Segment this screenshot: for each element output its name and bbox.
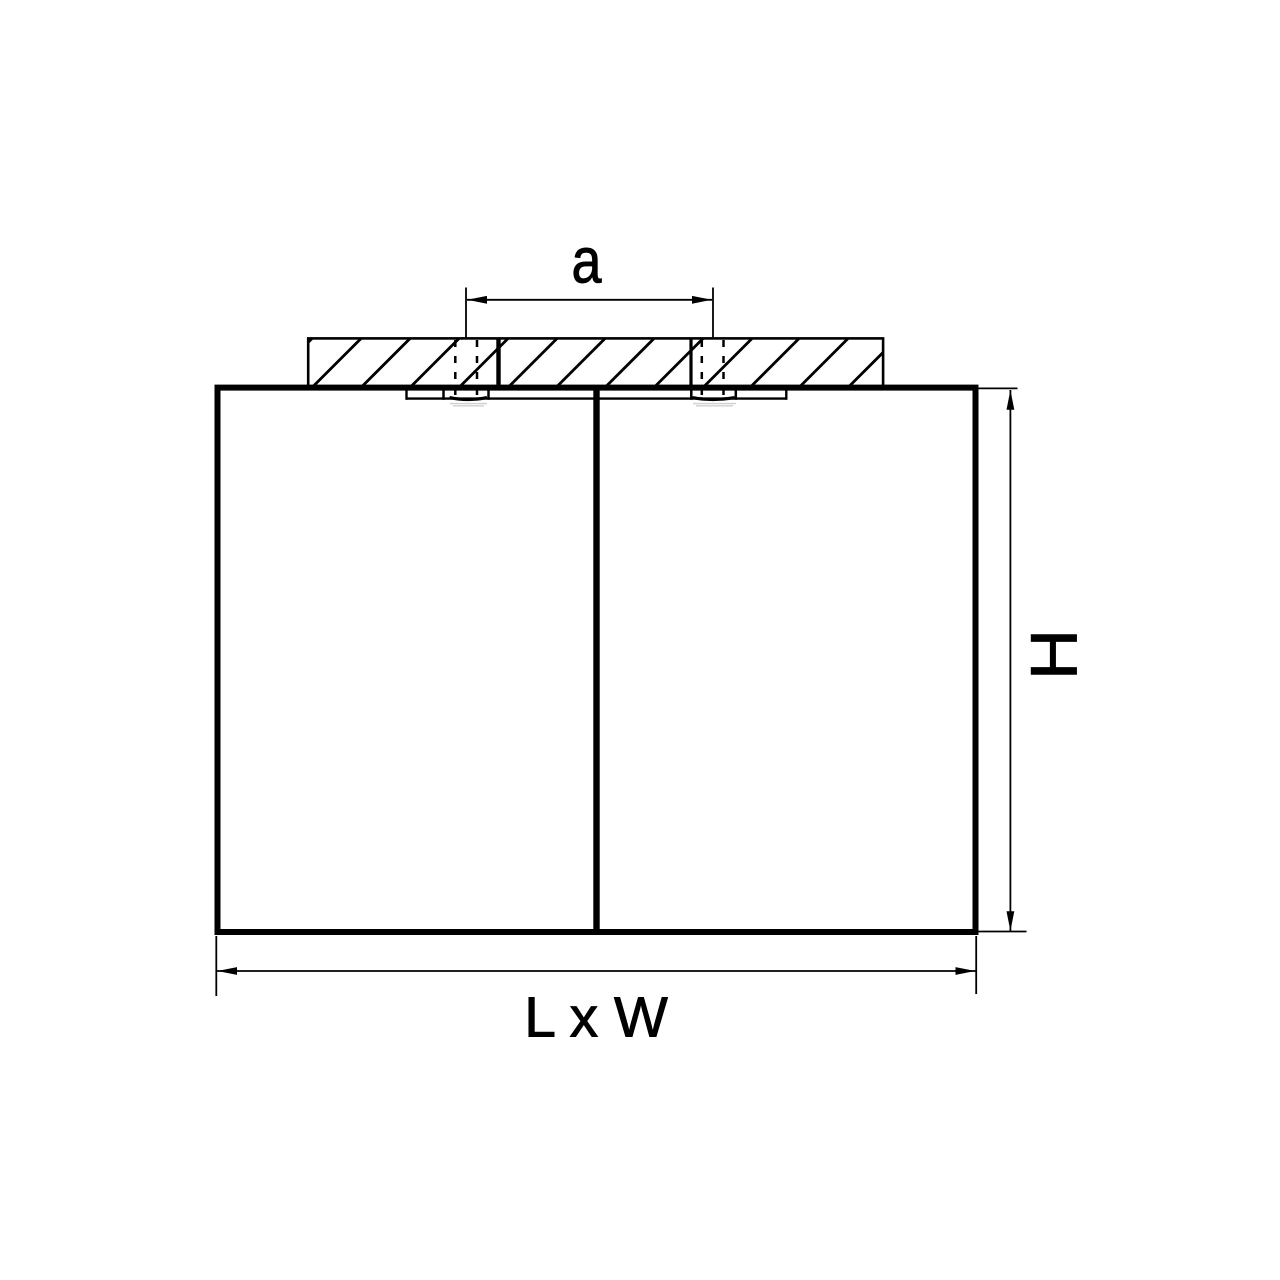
svg-text:L x W: L x W — [524, 986, 668, 1050]
svg-text:a: a — [572, 225, 602, 297]
svg-text:H: H — [1017, 629, 1091, 680]
